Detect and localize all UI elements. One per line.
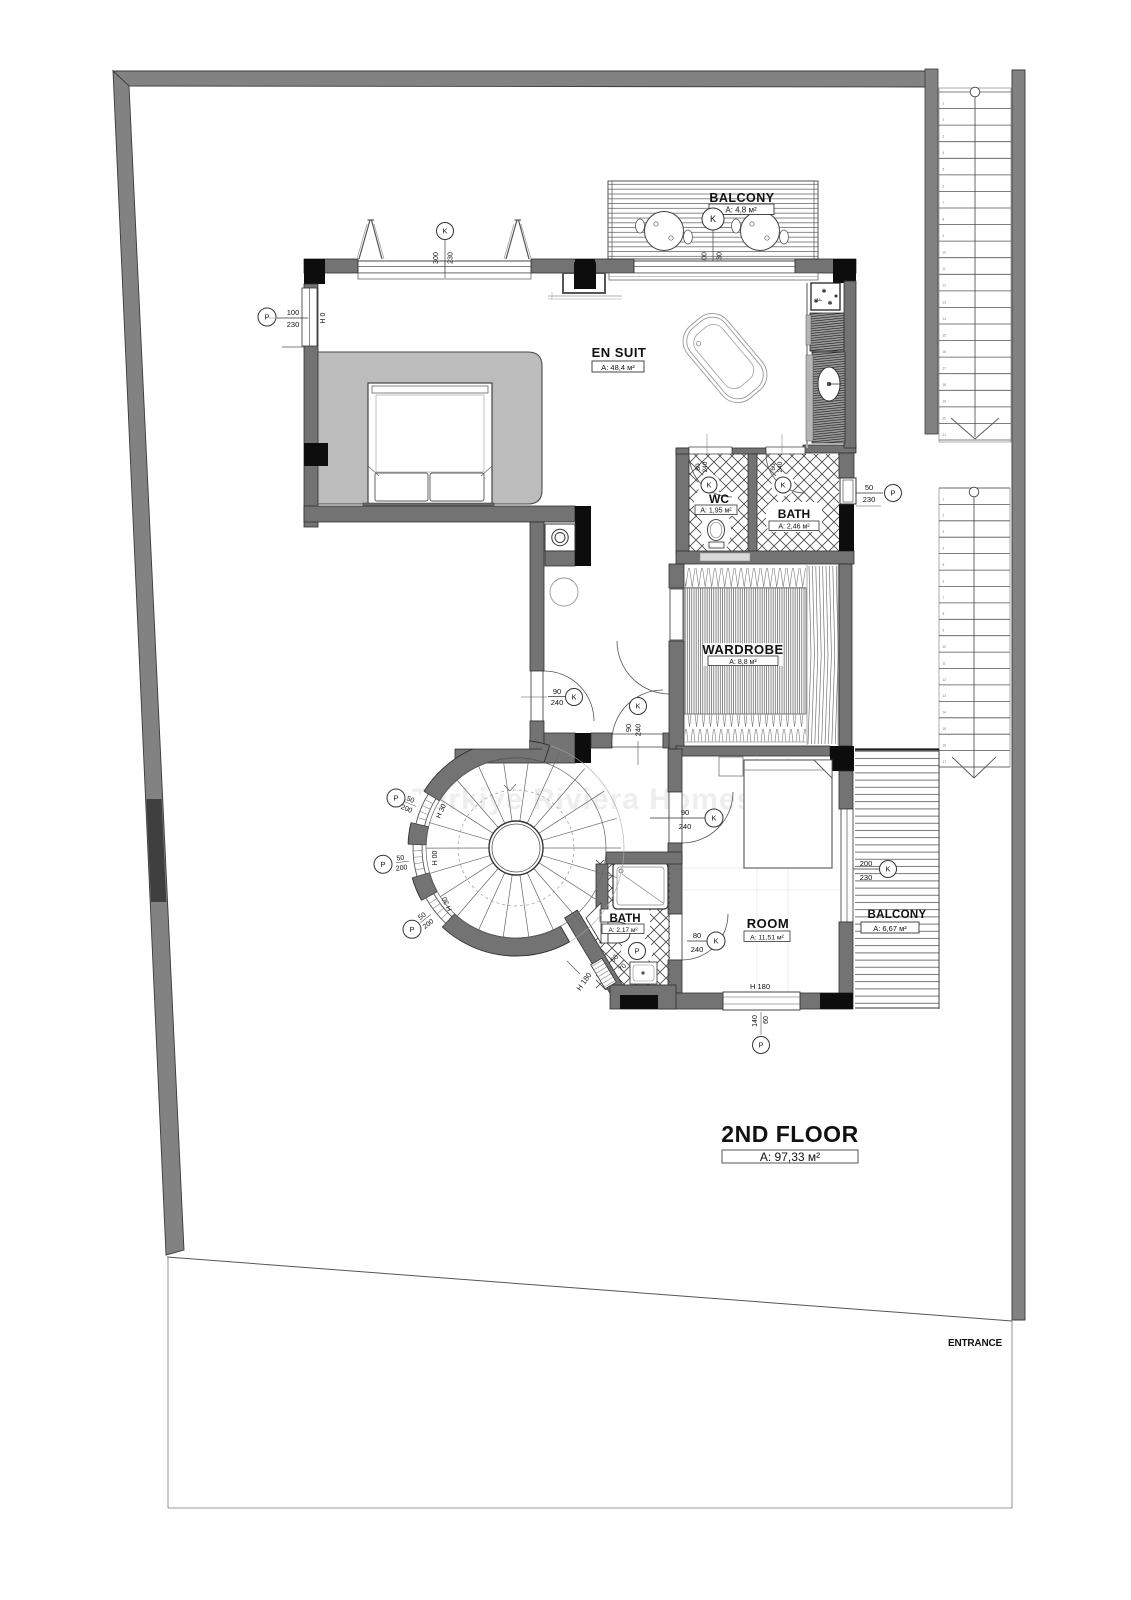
svg-text:A: 8,8 м²: A: 8,8 м² [729,659,757,666]
svg-text:18: 18 [943,383,947,387]
svg-text:21: 21 [943,433,947,437]
svg-text:P: P [890,489,895,498]
svg-text:240: 240 [691,945,704,954]
svg-text:EN SUIT: EN SUIT [592,345,647,360]
svg-text:8: 8 [943,612,945,616]
svg-text:BALCONY: BALCONY [709,191,774,205]
svg-text:K: K [710,214,716,224]
svg-text:5: 5 [943,168,945,172]
svg-text:10: 10 [943,645,947,649]
svg-text:13: 13 [943,300,947,304]
svg-text:90: 90 [553,687,561,696]
svg-text:90: 90 [624,724,633,732]
svg-text:8: 8 [943,217,945,221]
svg-text:P: P [393,794,398,803]
svg-text:90: 90 [681,808,689,817]
svg-text:✱: ✱ [821,288,826,295]
svg-text:6: 6 [943,579,945,583]
svg-text:2: 2 [943,514,945,518]
svg-text:7: 7 [943,201,945,205]
svg-text:A: 11,51 м²: A: 11,51 м² [750,935,784,942]
svg-text:15: 15 [943,727,947,731]
svg-text:240: 240 [551,698,564,707]
svg-text:10: 10 [943,251,947,255]
svg-text:50: 50 [865,483,873,492]
svg-text:P: P [264,313,269,322]
svg-text:240: 240 [634,724,643,737]
svg-text:7: 7 [943,596,945,600]
svg-text:2ND FLOOR: 2ND FLOOR [721,1121,858,1147]
svg-text:240: 240 [777,461,784,472]
svg-text:200: 200 [860,859,873,868]
svg-text:14: 14 [943,317,947,321]
svg-text:P: P [758,1041,763,1050]
svg-text:230: 230 [448,252,455,264]
svg-text:240: 240 [702,461,709,472]
svg-text:230: 230 [287,320,300,329]
svg-text:19: 19 [943,400,947,404]
svg-text:ENTRANCE: ENTRANCE [948,1338,1002,1349]
svg-text:9: 9 [943,234,945,238]
svg-text:6: 6 [943,184,945,188]
svg-text:4: 4 [943,151,945,155]
svg-text:230: 230 [860,873,873,882]
svg-text:14: 14 [943,711,947,715]
svg-text:P: P [409,925,414,934]
svg-text:K: K [780,481,785,490]
svg-text:20: 20 [943,416,947,420]
svg-text:15: 15 [943,333,947,337]
svg-text:A: 48,4 м²: A: 48,4 м² [601,363,635,372]
svg-text:K: K [442,227,447,236]
svg-text:17: 17 [943,760,947,764]
svg-text:11: 11 [943,267,947,271]
svg-text:60: 60 [770,463,777,471]
svg-text:K: K [635,702,640,711]
svg-text:16: 16 [943,744,947,748]
svg-text:12: 12 [943,284,947,288]
svg-text:5: 5 [943,563,945,567]
svg-text:P: P [380,860,385,869]
svg-text:BALCONY: BALCONY [868,909,927,921]
svg-text:K: K [706,481,711,490]
svg-text:A: 1,95 м²: A: 1,95 м² [700,508,732,515]
svg-text:H 180: H 180 [750,982,770,991]
svg-text:13: 13 [943,694,947,698]
svg-text:1: 1 [943,497,945,501]
svg-text:16: 16 [943,350,947,354]
svg-text:ROOM: ROOM [747,916,789,931]
svg-text:H 0: H 0 [320,312,327,323]
svg-text:11: 11 [943,661,947,665]
svg-text:WC: WC [709,492,729,506]
svg-text:3: 3 [943,530,945,534]
svg-text:9: 9 [943,629,945,633]
svg-text:K: K [711,814,716,823]
svg-text:200: 200 [395,864,408,872]
svg-text:12: 12 [943,678,947,682]
svg-text:F: F [818,297,824,301]
svg-text:A: 2,17 м²: A: 2,17 м² [608,927,638,934]
svg-text:1: 1 [943,101,945,105]
svg-text:80: 80 [695,463,702,471]
svg-text:BATH: BATH [609,913,640,925]
svg-text:60: 60 [763,1016,770,1024]
svg-text:300: 300 [433,252,440,264]
svg-text:100: 100 [287,308,300,317]
svg-text:A: 97,33 м²: A: 97,33 м² [760,1150,820,1164]
svg-text:3: 3 [943,135,945,139]
svg-text:240: 240 [679,822,692,831]
svg-text:140: 140 [752,1015,759,1027]
svg-text:K: K [885,865,890,874]
svg-text:A: 6,67 м²: A: 6,67 м² [873,924,907,933]
svg-text:A: 4,8 м²: A: 4,8 м² [725,206,757,215]
svg-text:4: 4 [943,547,945,551]
svg-text:2: 2 [943,118,945,122]
svg-text:230: 230 [863,495,876,504]
svg-text:K: K [713,937,718,946]
svg-text:P: P [634,947,639,956]
svg-text:A: 2,46 м²: A: 2,46 м² [778,524,810,531]
svg-text:80: 80 [693,931,701,940]
svg-text:50: 50 [396,855,405,863]
svg-text:✱: ✱ [827,300,832,307]
svg-text:BATH: BATH [778,507,810,521]
svg-text:K: K [571,693,576,702]
svg-text:17: 17 [943,367,947,371]
svg-text:WARDROBE: WARDROBE [702,642,783,657]
svg-text:H 00: H 00 [432,851,439,866]
